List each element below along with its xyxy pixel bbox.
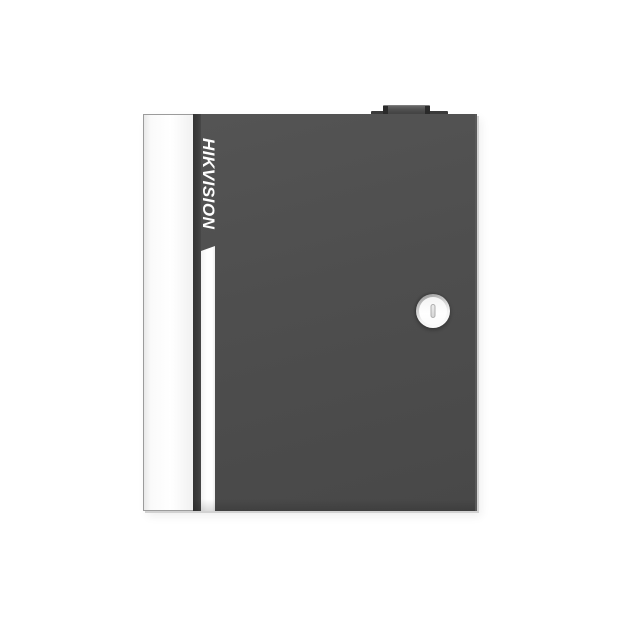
enclosure-device: HIKVISION [143,105,483,517]
top-knob-cap-right [425,106,430,114]
brand-logo: HIKVISION [201,138,215,229]
cam-lock [416,294,450,328]
hinge-side-panel [143,114,193,511]
cam-lock-face [419,297,447,325]
enclosure-door: HIKVISION [193,114,477,511]
enclosure-body: HIKVISION [143,114,477,511]
top-knob-face [388,106,425,114]
product-photo: HIKVISION [0,0,620,620]
accent-stripe [201,246,215,511]
keyhole-icon [431,304,436,318]
door-bottom-shade [193,499,475,511]
top-knob [383,105,430,114]
